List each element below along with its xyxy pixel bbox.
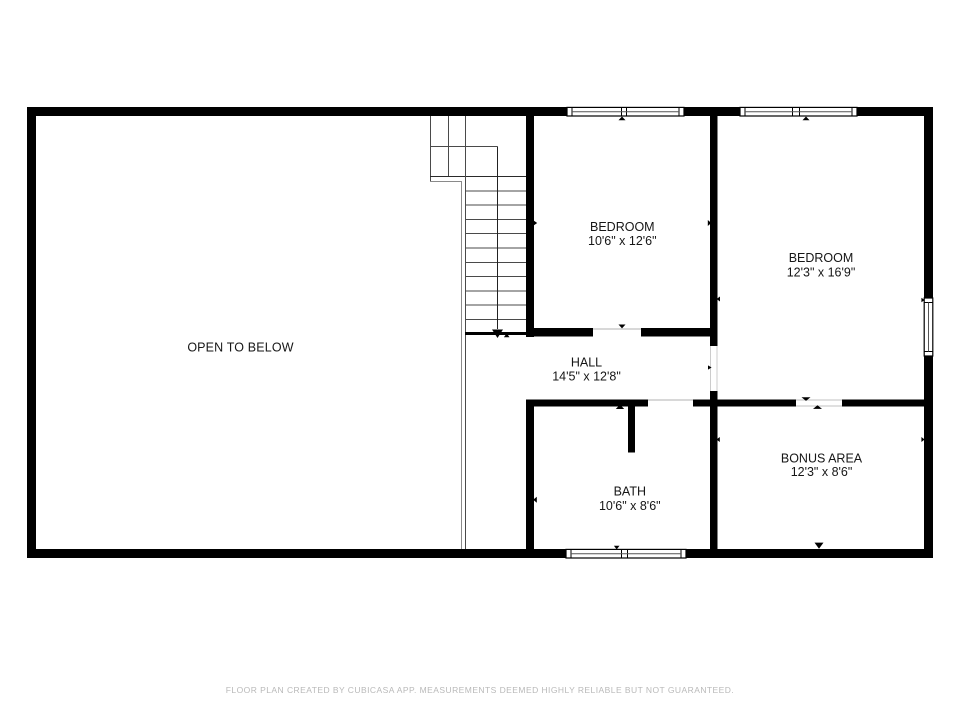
svg-text:12'3" x 16'9": 12'3" x 16'9" xyxy=(787,266,856,280)
svg-text:BEDROOM: BEDROOM xyxy=(789,251,854,265)
svg-text:OPEN TO BELOW: OPEN TO BELOW xyxy=(187,341,293,355)
svg-text:FLOOR PLAN CREATED BY CUBICASA: FLOOR PLAN CREATED BY CUBICASA APP. MEAS… xyxy=(226,685,734,695)
svg-text:HALL: HALL xyxy=(571,356,602,370)
svg-text:14'5" x 12'8": 14'5" x 12'8" xyxy=(552,370,621,384)
svg-text:10'6" x 12'6": 10'6" x 12'6" xyxy=(588,234,657,248)
svg-text:10'6" x 8'6": 10'6" x 8'6" xyxy=(599,499,661,513)
svg-text:BEDROOM: BEDROOM xyxy=(590,220,655,234)
svg-text:12'3" x 8'6": 12'3" x 8'6" xyxy=(791,465,853,479)
svg-text:BATH: BATH xyxy=(614,485,646,499)
svg-text:BONUS AREA: BONUS AREA xyxy=(781,452,863,466)
